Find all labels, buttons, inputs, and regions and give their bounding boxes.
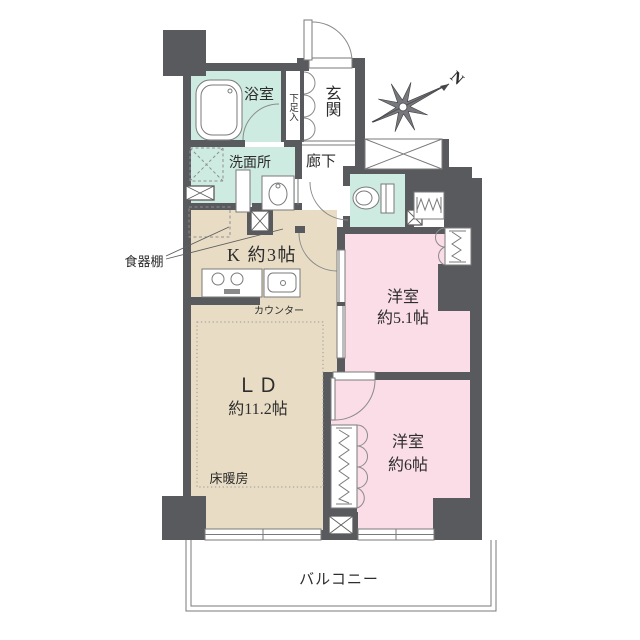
- wall-corridor-washroom: [295, 143, 302, 179]
- wall-toilet-left-upper: [343, 174, 350, 186]
- wall-right: [470, 178, 482, 540]
- bedroom2-door-opening: [333, 372, 375, 380]
- kitchen-label: K 約3帖: [227, 245, 297, 265]
- stove-grill: [224, 289, 240, 294]
- entry-door-leaf: [304, 20, 312, 60]
- bedroom2-size-label: 約6帖: [388, 456, 428, 474]
- sliding-door-meeting-stile: [337, 302, 345, 306]
- shoe-cabinet-label: 下足入: [287, 93, 299, 122]
- compass-star: [373, 82, 446, 131]
- washroom-label: 洗面所: [229, 155, 271, 171]
- wall-corridor-bottom-stub: [295, 226, 305, 233]
- entrance-label: 玄関: [323, 85, 342, 118]
- kitchen-counter-edge: [190, 297, 260, 305]
- floorplan-svg: N 浴室 下足入 玄関 洗面所 廊下 K 約3帖 食器棚 カウンター ＬＤ 約1…: [0, 0, 640, 640]
- bedroom2-label: 洋室: [392, 433, 424, 451]
- wall-bath-shoebox: [281, 68, 286, 142]
- floor-heating-label: 床暖房: [209, 471, 248, 486]
- wall-chunk-mid-right: [438, 264, 472, 311]
- compass-north-label: N: [447, 68, 467, 89]
- ld-label: ＬＤ: [237, 375, 279, 397]
- bedroom1-size-label: 約5.1帖: [377, 309, 429, 327]
- shoe-cabinet-door-arc-2: [304, 95, 315, 117]
- floorplan-canvas: N 浴室 下足入 玄関 洗面所 廊下 K 約3帖 食器棚 カウンター ＬＤ 約1…: [0, 0, 640, 640]
- bathroom-label: 浴室: [244, 86, 274, 103]
- wall-ld-bedroom2-vertical: [323, 380, 331, 530]
- wall-bath-washroom-right: [284, 140, 302, 147]
- wall-shoebox-entrance: [300, 68, 304, 142]
- wall-above-closet-a: [413, 167, 445, 192]
- toilet-tank: [381, 184, 394, 213]
- compass-hub: [399, 103, 407, 111]
- toilet-bowl: [353, 187, 379, 209]
- shoe-cabinet-door-arc-1: [304, 72, 315, 94]
- washroom-door-leaf: [236, 170, 250, 212]
- entry-door-opening: [309, 58, 352, 68]
- void-area: [365, 139, 442, 169]
- dish-shelf-label: 食器棚: [124, 254, 163, 269]
- bedroom1-label: 洋室: [387, 288, 419, 306]
- wall-chunk-upper-right: [444, 167, 472, 228]
- counter-label: カウンター: [254, 305, 304, 317]
- wall-bath-washroom-left: [183, 140, 245, 147]
- entry-door-swing-arc: [312, 22, 352, 60]
- wall-top-bath: [183, 63, 309, 71]
- wall-entrance-right: [355, 58, 365, 174]
- ld-size-label: 約11.2帖: [228, 400, 287, 418]
- balcony-label: バルコニー: [299, 572, 379, 588]
- shoe-cabinet-door-arc-3: [304, 118, 315, 140]
- compass: N: [372, 68, 467, 132]
- bedroom2-door-leaf: [331, 378, 335, 420]
- hallway-label: 廊下: [306, 153, 336, 170]
- entrance-fixtures: [302, 20, 355, 145]
